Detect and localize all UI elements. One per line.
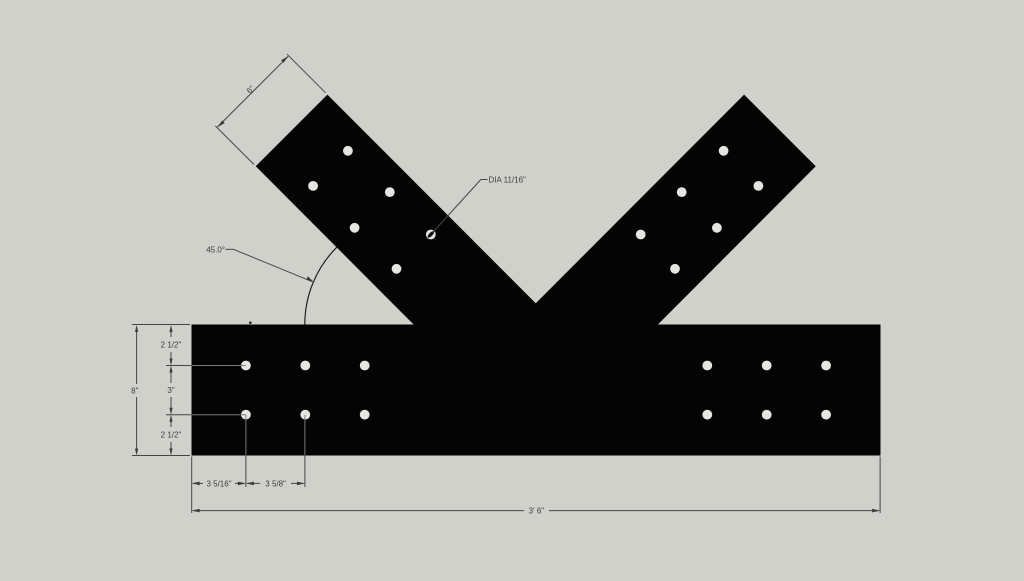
svg-text:2 1/2": 2 1/2": [161, 341, 182, 350]
svg-text:45.0°: 45.0°: [206, 245, 225, 254]
svg-text:2 1/2": 2 1/2": [161, 431, 182, 440]
svg-text:DIA 11/16": DIA 11/16": [489, 176, 527, 185]
svg-text:3": 3": [167, 386, 174, 395]
svg-text:3' 6": 3' 6": [529, 507, 545, 516]
svg-text:3 5/16": 3 5/16": [206, 479, 231, 488]
svg-text:3 5/8": 3 5/8": [265, 479, 286, 488]
svg-text:8": 8": [131, 387, 138, 396]
